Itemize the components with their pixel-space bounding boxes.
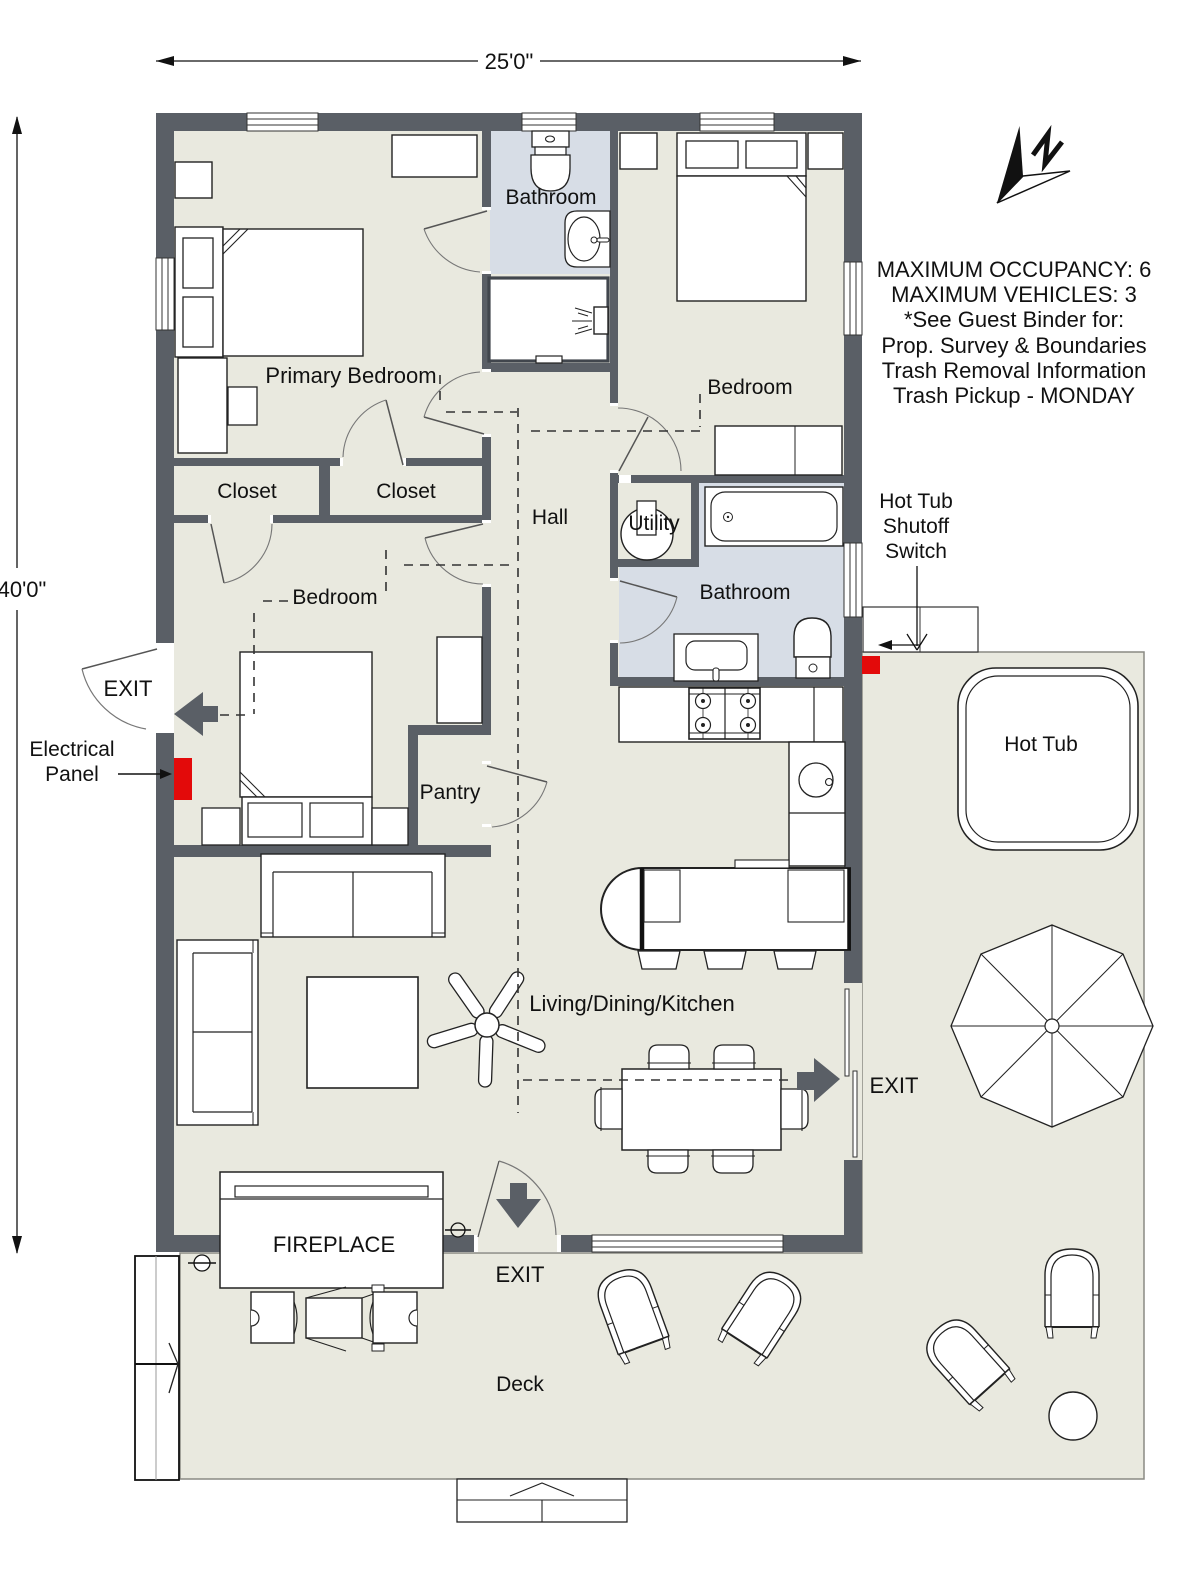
svg-text:Closet: Closet (217, 480, 277, 503)
svg-text:Utility: Utility (628, 512, 680, 535)
svg-text:EXIT: EXIT (104, 676, 153, 701)
svg-text:25'0": 25'0" (485, 49, 534, 74)
svg-text:Electrical: Electrical (29, 738, 114, 761)
svg-text:Shutoff: Shutoff (883, 515, 949, 538)
svg-text:Bedroom: Bedroom (292, 586, 377, 609)
svg-text:Switch: Switch (885, 540, 947, 563)
svg-text:Bedroom: Bedroom (707, 376, 792, 399)
svg-text:Closet: Closet (376, 480, 436, 503)
svg-text:40'0": 40'0" (0, 577, 46, 602)
svg-text:*See Guest Binder for:: *See Guest Binder for: (904, 307, 1124, 332)
svg-text:Prop. Survey & Boundaries: Prop. Survey & Boundaries (881, 333, 1146, 358)
svg-text:EXIT: EXIT (496, 1262, 545, 1287)
svg-text:Hot Tub: Hot Tub (1004, 733, 1078, 756)
svg-text:Bathroom: Bathroom (699, 581, 790, 604)
svg-text:Hall: Hall (532, 506, 568, 529)
svg-text:EXIT: EXIT (870, 1073, 919, 1098)
svg-text:Panel: Panel (45, 763, 99, 786)
svg-text:Deck: Deck (496, 1373, 544, 1396)
svg-text:Primary Bedroom: Primary Bedroom (265, 363, 436, 388)
svg-text:Trash Removal Information: Trash Removal Information (882, 358, 1147, 383)
svg-text:MAXIMUM VEHICLES: 3: MAXIMUM VEHICLES: 3 (891, 282, 1137, 307)
svg-text:Living/Dining/Kitchen: Living/Dining/Kitchen (529, 991, 734, 1016)
svg-text:Pantry: Pantry (420, 781, 481, 804)
svg-text:MAXIMUM OCCUPANCY: 6: MAXIMUM OCCUPANCY: 6 (877, 257, 1152, 282)
svg-text:Bathroom: Bathroom (505, 186, 596, 209)
svg-text:Trash Pickup - MONDAY: Trash Pickup - MONDAY (893, 383, 1135, 408)
svg-text:Hot Tub: Hot Tub (879, 490, 953, 513)
svg-text:FIREPLACE: FIREPLACE (273, 1232, 395, 1257)
